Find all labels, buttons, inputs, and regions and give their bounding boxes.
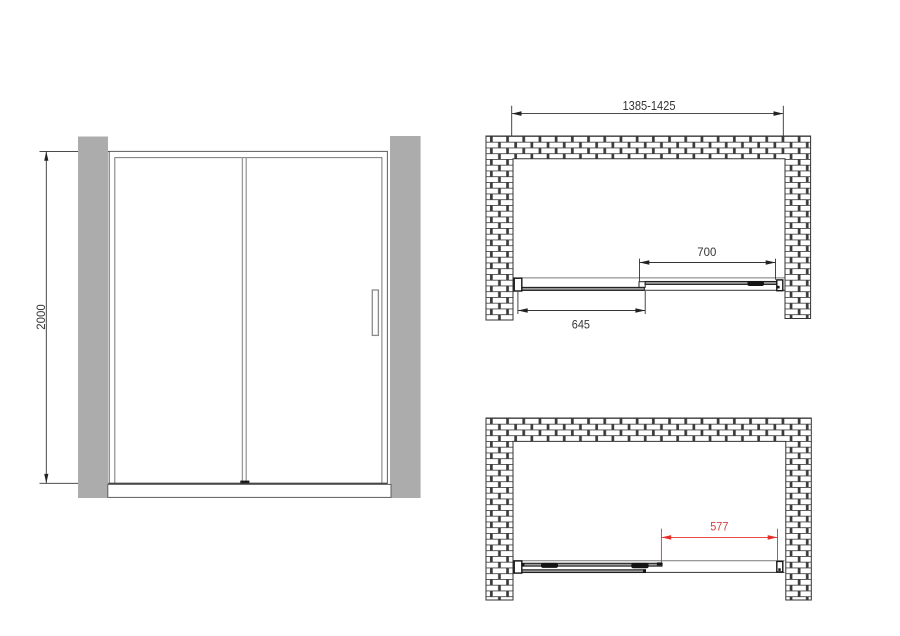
- svg-text:700: 700: [697, 245, 716, 259]
- svg-text:1385-1425: 1385-1425: [623, 98, 676, 113]
- svg-text:577: 577: [710, 520, 728, 534]
- svg-text:2000: 2000: [36, 304, 48, 330]
- svg-text:645: 645: [572, 318, 590, 332]
